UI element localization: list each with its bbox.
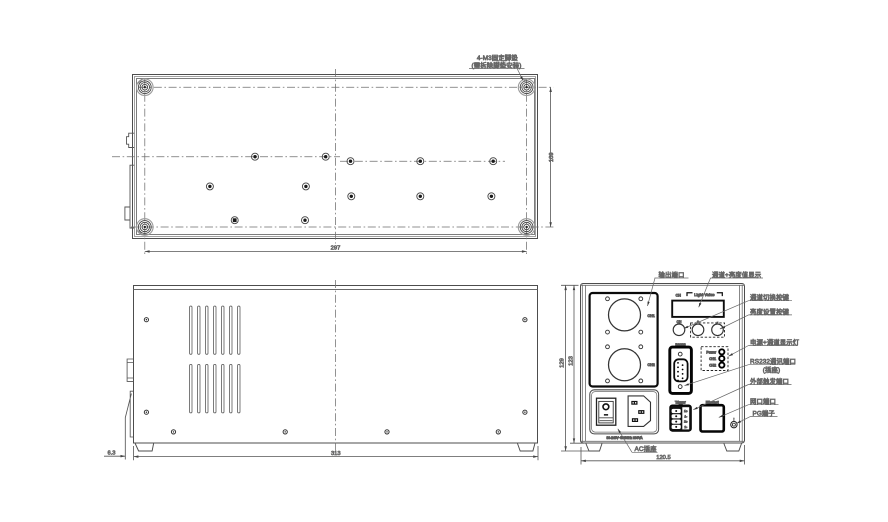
svg-text:CH1: CH1 bbox=[648, 314, 655, 318]
svg-text:129: 129 bbox=[559, 358, 565, 368]
svg-text:CH2: CH2 bbox=[709, 364, 716, 368]
svg-text:外部触发端口: 外部触发端口 bbox=[750, 376, 789, 385]
svg-text:CH2: CH2 bbox=[648, 363, 655, 367]
svg-text:90-240V~50/60Hz 800VA: 90-240V~50/60Hz 800VA bbox=[606, 436, 643, 440]
svg-text:1-: 1- bbox=[685, 414, 688, 418]
svg-text:Power: Power bbox=[706, 350, 716, 354]
svg-text:2-: 2- bbox=[685, 425, 688, 429]
svg-text:297: 297 bbox=[331, 246, 341, 252]
svg-text:(需拆除脚垫安装): (需拆除脚垫安装) bbox=[472, 60, 522, 69]
svg-text:通道切换按键: 通道切换按键 bbox=[750, 293, 789, 302]
svg-text:6.3: 6.3 bbox=[107, 451, 115, 457]
svg-text:电源+通道显示灯: 电源+通道显示灯 bbox=[750, 337, 800, 346]
svg-text:(插座): (插座) bbox=[763, 365, 780, 374]
svg-text:313: 313 bbox=[331, 451, 341, 457]
svg-text:120.5: 120.5 bbox=[656, 455, 671, 461]
svg-text:2+: 2+ bbox=[684, 420, 688, 424]
svg-text:RS232通讯端口: RS232通讯端口 bbox=[750, 357, 796, 366]
svg-text:网口端口: 网口端口 bbox=[750, 397, 776, 406]
svg-text:AC插座: AC插座 bbox=[635, 444, 658, 453]
svg-text:亮度设置按键: 亮度设置按键 bbox=[750, 307, 789, 316]
svg-text:109: 109 bbox=[549, 152, 555, 162]
svg-text:CH1: CH1 bbox=[709, 357, 716, 361]
svg-text:1+: 1+ bbox=[684, 409, 688, 413]
svg-text:123: 123 bbox=[569, 356, 575, 366]
svg-text:CH: CH bbox=[676, 293, 682, 297]
svg-text:4-M3固定脚垫: 4-M3固定脚垫 bbox=[477, 53, 518, 62]
svg-text:PG端子: PG端子 bbox=[753, 408, 776, 417]
svg-text:Trigger: Trigger bbox=[675, 400, 686, 404]
